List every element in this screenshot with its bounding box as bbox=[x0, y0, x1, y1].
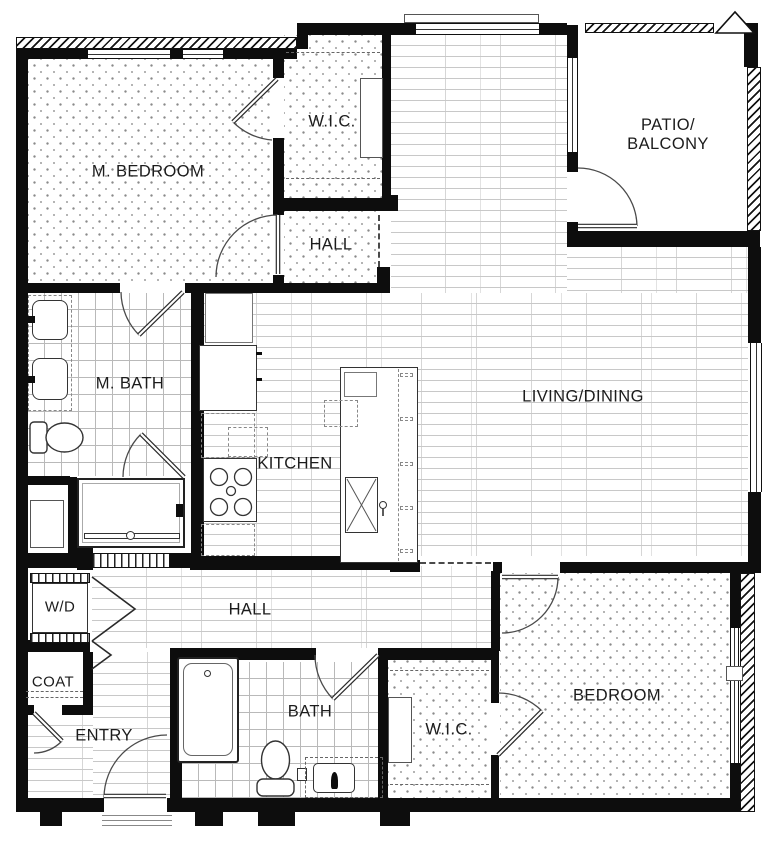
room-label-entry: ENTRY bbox=[75, 727, 133, 746]
door-arc bbox=[578, 168, 637, 226]
room-label-wic-top: W.I.C. bbox=[308, 113, 355, 132]
stove-burner-icons bbox=[211, 469, 252, 516]
room-label-patio-balcony: PATIO/ BALCONY bbox=[627, 116, 709, 154]
room-label-hall-top: HALL bbox=[310, 236, 353, 255]
door-leaves-inner bbox=[34, 79, 637, 796]
door-leaf-inner bbox=[34, 713, 62, 741]
door-arc bbox=[34, 741, 62, 753]
room-label-coat: COAT bbox=[32, 673, 74, 690]
room-label-wd: W/D bbox=[45, 598, 75, 615]
bifold-door-icon bbox=[92, 577, 135, 669]
room-label-bath: BATH bbox=[288, 703, 332, 722]
door-arc bbox=[315, 655, 333, 699]
kitchen-sink-basin-icon bbox=[347, 479, 387, 531]
door-leaves-outer bbox=[34, 79, 637, 796]
door-arc bbox=[216, 215, 278, 277]
room-label-hall-bottom: HALL bbox=[229, 601, 272, 620]
floor-plan: M. BEDROOM W.I.C. PATIO/ BALCONY HALL LI… bbox=[0, 0, 784, 844]
door-leaf-inner bbox=[139, 292, 183, 335]
room-label-living-dining: LIVING/DINING bbox=[522, 388, 644, 407]
door-leaf-inner bbox=[141, 434, 184, 477]
corner-marker-icon bbox=[716, 12, 754, 33]
door-arc bbox=[121, 292, 139, 335]
door-leaf-inner bbox=[333, 655, 378, 699]
room-label-wic-bottom: W.I.C. bbox=[425, 721, 472, 740]
door-leaf-inner bbox=[233, 79, 277, 122]
door-arc bbox=[502, 577, 558, 633]
toilet-master-bath bbox=[30, 422, 83, 453]
door-arc bbox=[123, 434, 141, 477]
toilet-bath bbox=[257, 741, 294, 796]
door-arc bbox=[233, 122, 272, 140]
room-label-master-bath: M. BATH bbox=[96, 375, 165, 394]
room-label-bedroom: BEDROOM bbox=[573, 687, 661, 706]
door-arc bbox=[498, 693, 542, 711]
door-leaf-inner bbox=[498, 711, 542, 755]
room-label-kitchen: KITCHEN bbox=[257, 455, 332, 474]
room-label-master-bedroom: M. BEDROOM bbox=[92, 163, 204, 182]
